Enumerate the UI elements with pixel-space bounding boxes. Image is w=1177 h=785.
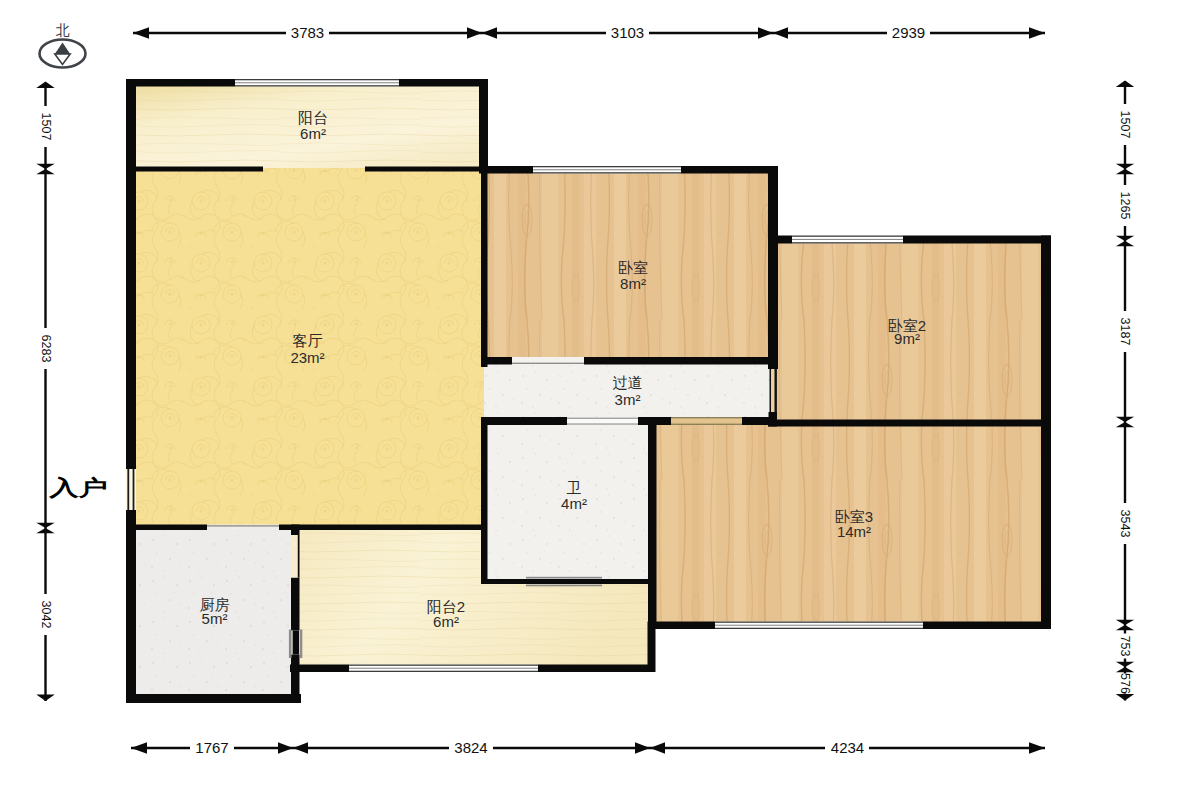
svg-text:3543: 3543 (1118, 510, 1132, 538)
svg-text:3m²: 3m² (615, 391, 641, 408)
svg-text:过道: 过道 (613, 374, 643, 391)
svg-text:6m²: 6m² (300, 125, 326, 142)
svg-text:3783: 3783 (291, 24, 324, 41)
svg-text:入户: 入户 (48, 476, 107, 500)
svg-text:2939: 2939 (892, 24, 925, 41)
svg-text:14m²: 14m² (837, 523, 871, 540)
svg-text:8m²: 8m² (620, 275, 646, 292)
svg-text:23m²: 23m² (290, 349, 324, 366)
svg-text:卧室: 卧室 (618, 259, 648, 276)
svg-text:阳台: 阳台 (298, 109, 328, 126)
svg-text:4234: 4234 (831, 739, 864, 756)
svg-text:576: 576 (1118, 673, 1132, 694)
svg-text:3187: 3187 (1118, 318, 1132, 346)
svg-text:5m²: 5m² (202, 610, 228, 627)
svg-text:1767: 1767 (195, 739, 228, 756)
svg-text:北: 北 (56, 22, 70, 38)
svg-text:3042: 3042 (39, 601, 53, 629)
svg-text:6m²: 6m² (433, 613, 459, 630)
svg-text:客厅: 客厅 (293, 332, 323, 349)
svg-text:1507: 1507 (1118, 111, 1132, 139)
svg-text:4m²: 4m² (561, 495, 587, 512)
svg-text:6283: 6283 (39, 335, 53, 363)
svg-text:3103: 3103 (611, 24, 644, 41)
svg-text:753: 753 (1118, 636, 1132, 657)
svg-text:1265: 1265 (1118, 192, 1132, 220)
svg-text:卫: 卫 (567, 479, 582, 496)
svg-text:1507: 1507 (39, 113, 53, 141)
svg-text:3824: 3824 (454, 739, 487, 756)
svg-text:9m²: 9m² (894, 330, 920, 347)
